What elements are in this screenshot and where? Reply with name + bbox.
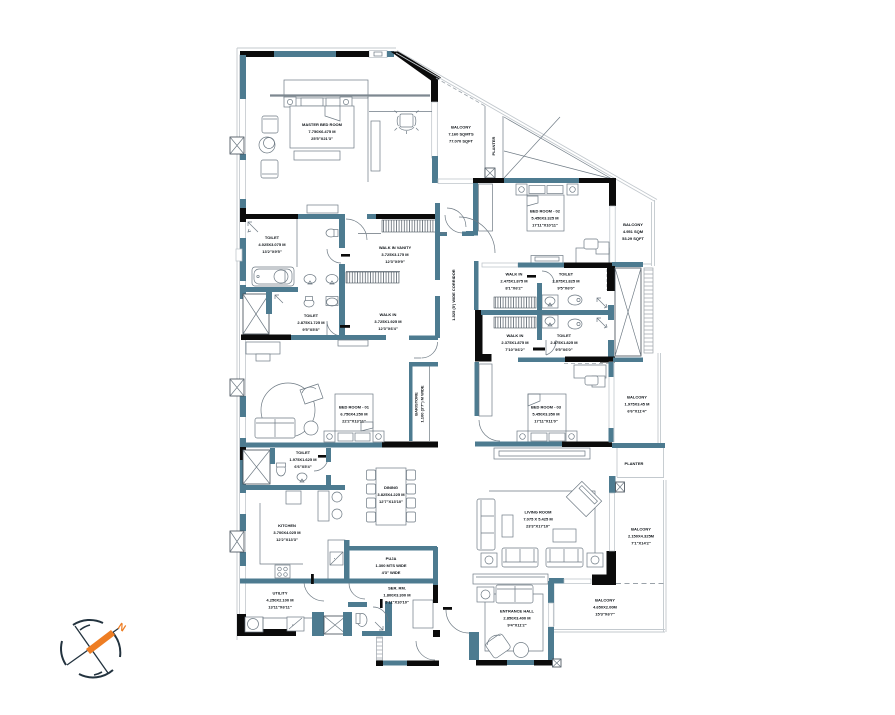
svg-text:13'2"X9'5": 13'2"X9'5" (262, 249, 282, 254)
svg-text:4.250X2.100 M: 4.250X2.100 M (266, 598, 294, 603)
svg-text:BALCONY: BALCONY (631, 527, 651, 532)
svg-text:SER. RM.: SER. RM. (388, 586, 406, 591)
svg-text:23'3"X17'10": 23'3"X17'10" (526, 524, 550, 529)
svg-text:PLANTER: PLANTER (625, 461, 644, 466)
svg-text:BALCONY: BALCONY (627, 395, 647, 400)
svg-text:WALK IN: WALK IN (507, 333, 524, 338)
svg-text:9'5"X5'8": 9'5"X5'8" (302, 327, 319, 332)
svg-text:22'2"X13'11": 22'2"X13'11" (342, 419, 366, 424)
svg-text:17'11"X10'11": 17'11"X10'11" (532, 223, 558, 228)
svg-text:6.750X4.250 M: 6.750X4.250 M (340, 412, 368, 417)
svg-text:7'10"X6'2": 7'10"X6'2" (505, 347, 525, 352)
svg-text:9'4"X11'2": 9'4"X11'2" (507, 623, 526, 628)
svg-text:DINING: DINING (384, 485, 398, 490)
svg-text:TOILET: TOILET (265, 235, 280, 240)
svg-text:2.375X1.875 M: 2.375X1.875 M (501, 340, 529, 345)
svg-text:5.450X3.325 M: 5.450X3.325 M (531, 216, 559, 221)
svg-text:WALK IN: WALK IN (506, 272, 523, 277)
svg-text:3.725X1.925 M: 3.725X1.925 M (374, 319, 402, 324)
svg-text:25'5"X21'3": 25'5"X21'3" (311, 136, 333, 141)
svg-text:15'3"X6'7": 15'3"X6'7" (595, 612, 615, 617)
svg-text:KITCHEN: KITCHEN (278, 523, 296, 528)
svg-text:12'3"X6'4": 12'3"X6'4" (378, 326, 398, 331)
svg-text:1.525 (5') WIDE CORRIDOR: 1.525 (5') WIDE CORRIDOR (451, 269, 456, 321)
svg-text:7.750X6.475 M: 7.750X6.475 M (308, 129, 336, 134)
svg-text:7.160 SQMTS: 7.160 SQMTS (448, 132, 474, 137)
svg-text:BALCONY: BALCONY (623, 222, 643, 227)
svg-text:BED ROOM - 02: BED ROOM - 02 (530, 209, 561, 214)
svg-text:4.025X3.075 M: 4.025X3.075 M (258, 242, 286, 247)
svg-text:3.700X4.025 M: 3.700X4.025 M (273, 530, 301, 535)
svg-text:9'5"X6'0": 9'5"X6'0" (555, 347, 572, 352)
svg-text:2.875X1.825 M: 2.875X1.825 M (550, 340, 578, 345)
svg-text:9'5"X6'0": 9'5"X6'0" (557, 286, 574, 291)
svg-text:MASTER BED ROOM: MASTER BED ROOM (302, 122, 343, 127)
svg-text:5.450X3.350 M: 5.450X3.350 M (532, 412, 560, 417)
svg-text:LIVING ROOM: LIVING ROOM (525, 510, 553, 515)
svg-text:4'3" WIDE: 4'3" WIDE (382, 570, 401, 575)
svg-text:TOILET: TOILET (557, 333, 572, 338)
svg-text:2.875X1.825 M: 2.875X1.825 M (552, 279, 580, 284)
svg-text:UTILITY: UTILITY (272, 591, 287, 596)
svg-text:8'1"X6'2": 8'1"X6'2" (505, 286, 522, 291)
svg-text:1.975X1.625 M: 1.975X1.625 M (289, 457, 317, 462)
svg-text:5'11"X10'10": 5'11"X10'10" (385, 600, 409, 605)
svg-text:2.875X1.725 M: 2.875X1.725 M (297, 320, 325, 325)
svg-text:2.475X1.875 M: 2.475X1.875 M (500, 279, 528, 284)
svg-text:6'6"X5'4": 6'6"X5'4" (294, 464, 311, 469)
svg-text:BALCONY: BALCONY (451, 125, 471, 130)
svg-text:3.825X4.225 M: 3.825X4.225 M (377, 492, 405, 497)
svg-text:TOILET: TOILET (559, 272, 574, 277)
svg-text:PUJA: PUJA (386, 556, 397, 561)
svg-text:7.075 X 5.425 M: 7.075 X 5.425 M (523, 517, 553, 522)
svg-text:53.29 SQFT: 53.29 SQFT (622, 236, 644, 241)
svg-text:BED ROOM - 01: BED ROOM - 01 (339, 405, 370, 410)
svg-text:13'11"X6'11": 13'11"X6'11" (268, 605, 292, 610)
svg-text:4.951 SQM: 4.951 SQM (623, 229, 644, 234)
svg-text:TOILET: TOILET (296, 450, 311, 455)
svg-text:2.150X4.325M: 2.150X4.325M (628, 534, 655, 539)
svg-text:BALCONY: BALCONY (595, 598, 615, 603)
svg-text:77.070 SQFT: 77.070 SQFT (449, 139, 474, 144)
svg-text:1.975X3.45 M: 1.975X3.45 M (625, 402, 651, 407)
svg-text:TOILET: TOILET (304, 313, 319, 318)
svg-text:7'1"X14'2": 7'1"X14'2" (631, 541, 651, 546)
svg-text:3.725X3.175 M: 3.725X3.175 M (381, 252, 409, 257)
svg-text:6'6"X11'4": 6'6"X11'4" (627, 409, 646, 414)
svg-text:1.800X3.300 M: 1.800X3.300 M (383, 593, 411, 598)
svg-text:17'11"X11'0": 17'11"X11'0" (534, 419, 558, 424)
svg-text:2.850X3.400 M: 2.850X3.400 M (503, 616, 531, 621)
svg-text:12'3"X9'9": 12'3"X9'9" (385, 259, 405, 264)
svg-text:4.650X2.00M: 4.650X2.00M (593, 605, 617, 610)
svg-text:1.300 MTS WIDE: 1.300 MTS WIDE (375, 563, 406, 568)
svg-text:12'2"X13'3": 12'2"X13'3" (276, 537, 298, 542)
svg-text:PLANTER: PLANTER (491, 136, 496, 155)
svg-text:ENTRANCE HALL: ENTRANCE HALL (500, 609, 535, 614)
svg-text:BED ROOM - 03: BED ROOM - 03 (531, 405, 562, 410)
svg-text:1.100 (3'7") M WIDE: 1.100 (3'7") M WIDE (420, 385, 425, 422)
svg-text:12'7"X13'10": 12'7"X13'10" (379, 499, 403, 504)
svg-text:WALK IN VANITY: WALK IN VANITY (379, 245, 412, 250)
svg-text:BAR/STORE: BAR/STORE (414, 392, 419, 416)
svg-text:WALK IN: WALK IN (380, 312, 397, 317)
